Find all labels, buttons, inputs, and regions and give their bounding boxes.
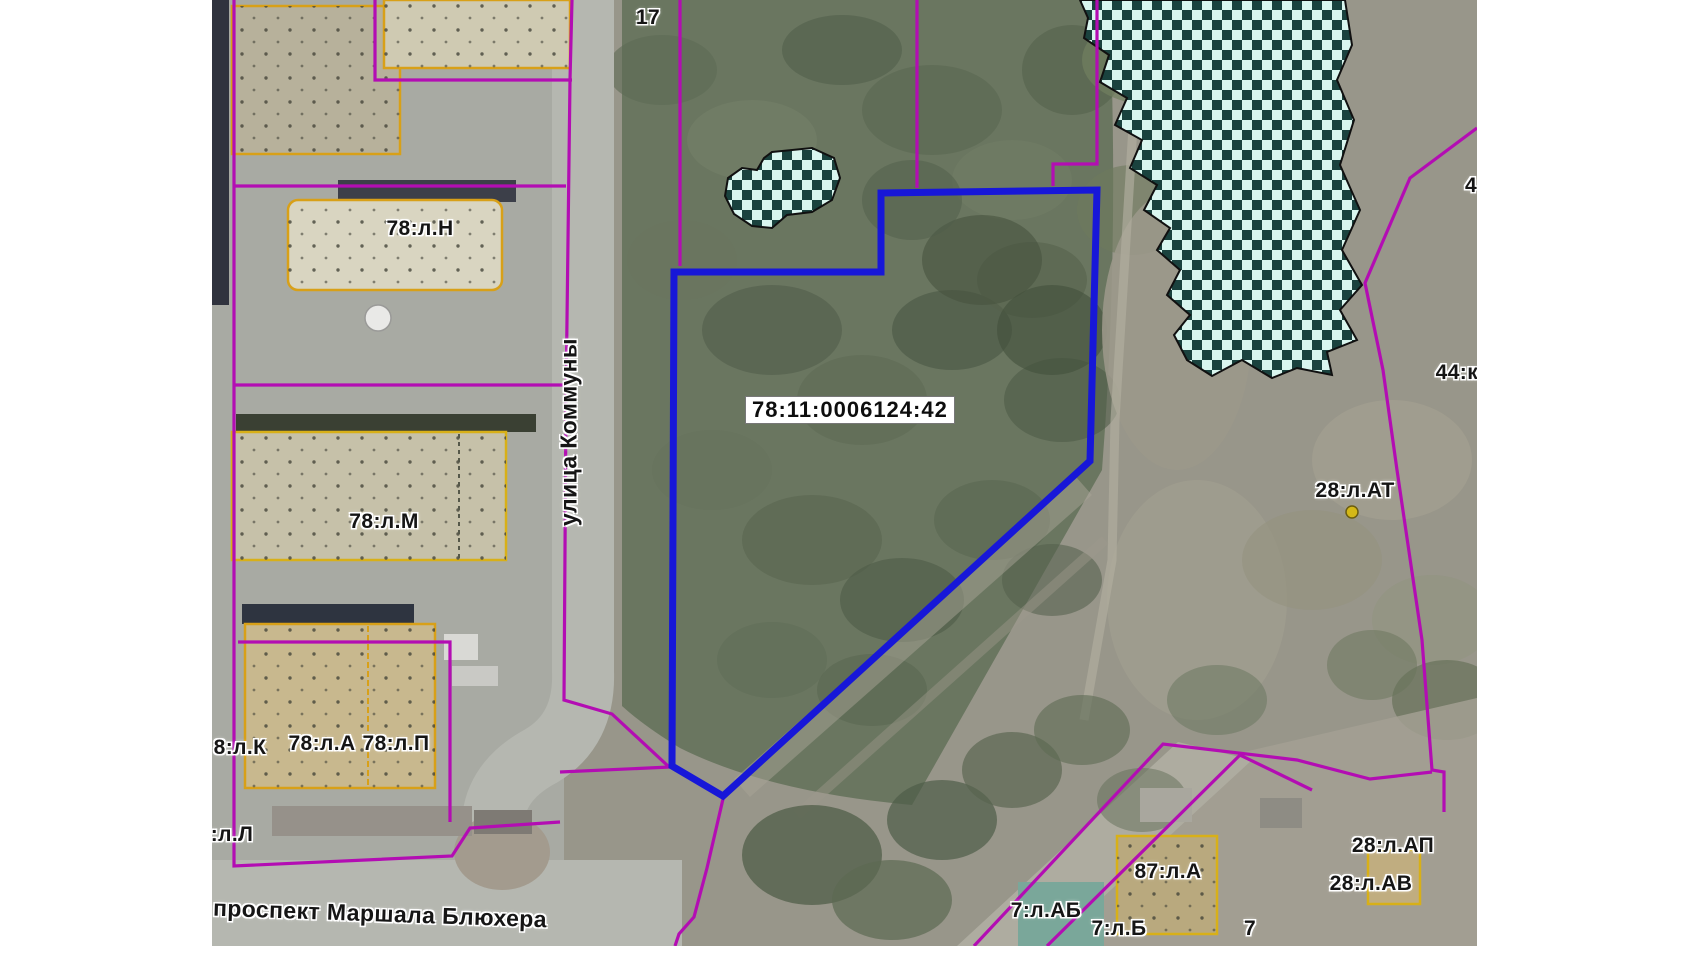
prospekt-row-east [474,810,532,834]
prospekt-row-west [272,806,472,836]
building-78lN-texture [288,200,502,290]
roof-strip-78lA [242,604,414,624]
shed-right-2 [1140,788,1192,822]
shed-right-1 [1260,798,1302,828]
screenshot-canvas: { "map": { "selected_parcel": { "cadastr… [0,0,1700,956]
building-78lM-texture [232,432,506,560]
building-17-texture [384,0,570,68]
markers-layer [1346,506,1358,518]
building-78lA-78lP-texture [245,624,435,788]
roof-strip-78lN [338,180,516,202]
building-teal-roof [1018,882,1104,946]
tank [365,305,391,331]
shed-2 [452,666,498,686]
building-87lA-texture [1117,836,1217,934]
building-28lAP [1368,850,1420,904]
building-dark-strip [212,0,229,305]
roof-strip-78lM [236,414,536,432]
point-marker [1346,506,1358,518]
cadastral-number-label: 78:11:0006124:42 [745,396,955,424]
map-canvas [212,0,1477,946]
cadastral-map[interactable]: 1778:л.Н78:л.М8:л.К78:л.А78:л.П8:л.Л28:л… [212,0,1477,946]
